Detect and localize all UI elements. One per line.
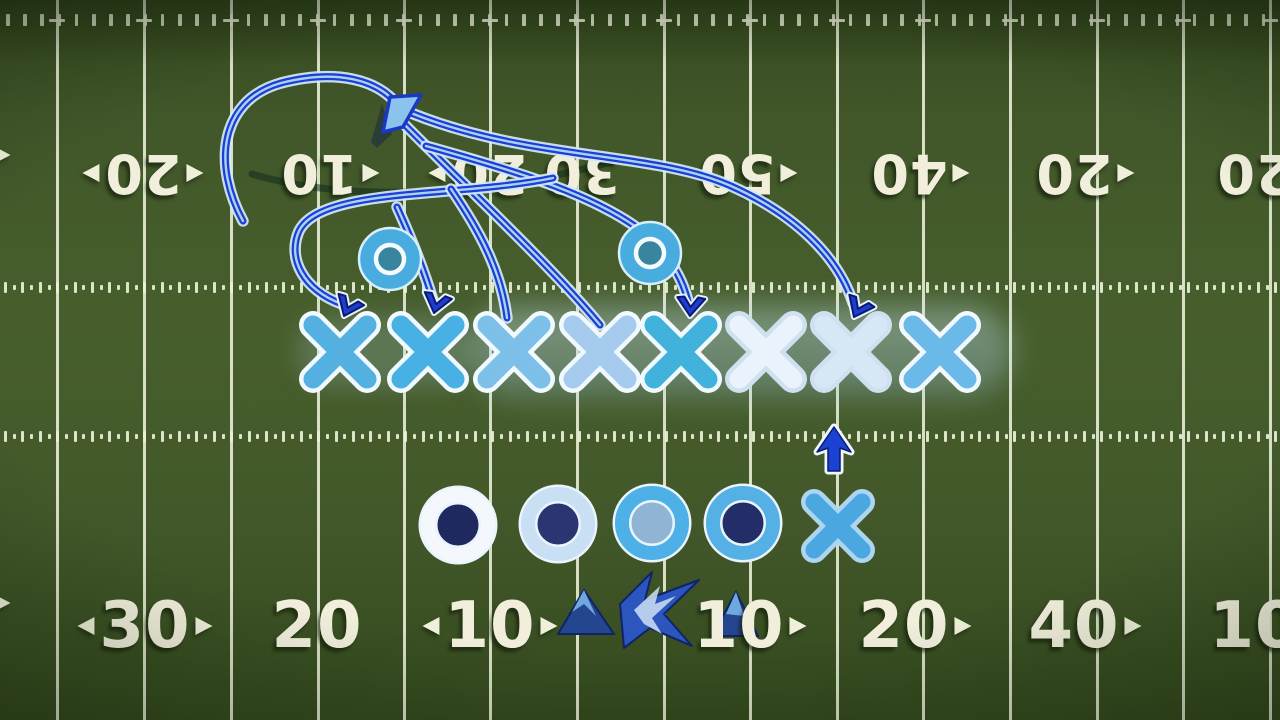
lineman-o-marker <box>622 493 682 553</box>
play-diagram-layer <box>0 0 1280 720</box>
receiver-o-marker <box>619 222 681 284</box>
lineman-o-marker <box>428 495 488 555</box>
defender-x-marker <box>739 325 793 379</box>
receiver-o-marker <box>359 228 421 290</box>
defender-x-marker <box>573 325 627 379</box>
defender-x-marker <box>913 325 967 379</box>
o-hole <box>636 239 664 267</box>
defender-x-marker <box>401 325 455 379</box>
lineman-o-marker <box>713 493 773 553</box>
o-hole <box>376 245 404 273</box>
defender-x-marker <box>824 325 878 379</box>
defender-x-marker <box>654 325 708 379</box>
up-arrow-icon <box>817 427 851 471</box>
football-play-diagram: 2010203050402020 30201010204010 <box>0 0 1280 720</box>
defender-x-marker <box>487 325 541 379</box>
defender-x-marker <box>313 325 367 379</box>
route-halo-strand-to-x3 <box>451 189 507 318</box>
lineman-o-marker <box>528 494 588 554</box>
blitzer-x-marker <box>814 502 862 550</box>
